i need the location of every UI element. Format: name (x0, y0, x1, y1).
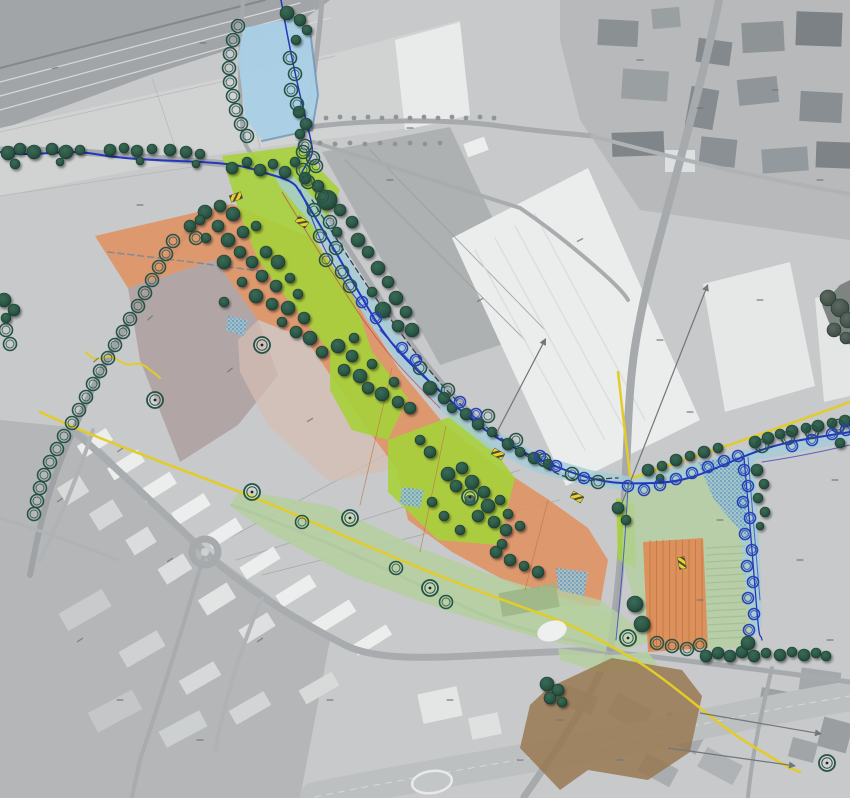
building-roof (651, 7, 681, 29)
tree-icon (195, 149, 205, 159)
parcel-label-mark (517, 759, 524, 760)
tree-icon (56, 158, 64, 166)
building-roof (799, 91, 843, 123)
tree-icon (627, 596, 643, 612)
tree-icon (450, 480, 462, 492)
tree-icon (472, 510, 484, 522)
tree-icon (346, 216, 358, 228)
tree-icon (724, 650, 736, 662)
tree-icon (821, 651, 831, 661)
tree-icon (761, 648, 771, 658)
aerial-tree (827, 323, 841, 337)
tree-icon (254, 164, 266, 176)
parcel-label-mark (617, 759, 624, 760)
building-roof (621, 68, 669, 101)
tree-icon (293, 289, 303, 299)
tree-icon (184, 220, 196, 232)
tree-icon (375, 302, 391, 318)
tree-icon (557, 697, 567, 707)
map-canvas (0, 0, 850, 798)
tree-icon (10, 159, 20, 169)
tree-icon (219, 297, 229, 307)
tree-icon (237, 226, 249, 238)
tree-icon (268, 159, 278, 169)
tree-icon (456, 462, 468, 474)
tree-icon (349, 333, 359, 343)
tree-icon (753, 493, 763, 503)
roundabout-ring (201, 548, 209, 556)
tree-icon (271, 255, 285, 269)
tree-icon (367, 287, 377, 297)
tree-icon (59, 145, 73, 159)
tree-icon (392, 396, 404, 408)
tree-icon (1, 313, 11, 323)
specimen-tree-icon (244, 484, 260, 500)
tree-icon (713, 443, 723, 453)
aerial-tree-dot (378, 141, 383, 146)
aerial-tree-dot (338, 115, 343, 120)
parcel-label-mark (797, 559, 804, 560)
tree-icon (362, 246, 374, 258)
tree-icon (302, 25, 312, 35)
tree-icon (303, 331, 317, 345)
tree-icon (488, 516, 500, 528)
aerial-field-patch (395, 22, 470, 130)
tree-icon (495, 495, 505, 505)
tree-icon (519, 561, 529, 571)
tree-icon (285, 273, 295, 283)
tree-icon (214, 200, 226, 212)
tree-icon (27, 145, 41, 159)
specimen-tree-icon (422, 580, 438, 596)
tree-icon (741, 636, 755, 650)
zone-allotment (643, 538, 708, 652)
tree-icon (136, 157, 144, 165)
parcel-label-mark (657, 339, 664, 340)
tree-icon (798, 649, 810, 661)
tree-icon (277, 317, 287, 327)
tree-icon (404, 402, 416, 414)
tree-icon (835, 438, 845, 448)
tree-icon (195, 215, 205, 225)
aerial-tree-dot (352, 116, 357, 121)
tree-icon (423, 381, 437, 395)
specimen-tree-icon (342, 510, 358, 526)
tree-icon (249, 289, 263, 303)
tree-icon (353, 369, 367, 383)
tree-icon (497, 539, 507, 549)
tree-icon (346, 350, 358, 362)
tree-icon (332, 227, 342, 237)
tree-icon (367, 359, 377, 369)
parcel-label-mark (447, 699, 454, 700)
tree-icon (670, 454, 682, 466)
tree-icon (389, 291, 403, 305)
aerial-tree-dot (436, 116, 441, 121)
tree-icon (712, 647, 724, 659)
building-roof (737, 76, 779, 106)
parcel-label-mark (832, 479, 839, 480)
tree-icon (515, 447, 525, 457)
tree-icon (389, 377, 399, 387)
tree-icon (8, 304, 20, 316)
aerial-tree-dot (492, 116, 497, 121)
tree-icon (405, 323, 419, 337)
tree-icon (334, 204, 346, 216)
tree-icon (544, 692, 556, 704)
aerial-tree-dot (333, 142, 338, 147)
building-roof (741, 21, 785, 53)
tree-icon (371, 261, 385, 275)
parcel-label-mark (407, 127, 414, 128)
tree-icon (503, 509, 513, 519)
tree-icon (1, 146, 15, 160)
tree-icon (270, 280, 282, 292)
tree-icon (685, 451, 695, 461)
aerial-tree-dot (438, 141, 443, 146)
tree-icon (400, 306, 412, 318)
aerial-tree-dot (423, 142, 428, 147)
parcel-label-mark (117, 699, 124, 700)
tree-icon (774, 649, 786, 661)
tree-icon (164, 144, 176, 156)
parcel-label-mark (757, 299, 764, 300)
aerial-tree-dot (408, 141, 413, 146)
tree-icon (119, 143, 129, 153)
tree-icon (256, 270, 268, 282)
tree-icon (280, 6, 294, 20)
tree-icon (338, 364, 350, 376)
tree-icon (251, 221, 261, 231)
tree-icon (46, 143, 58, 155)
parcel-label-mark (387, 179, 394, 180)
tree-icon (281, 301, 295, 315)
tree-icon (180, 146, 192, 158)
specimen-tree-icon (620, 630, 636, 646)
tree-icon (266, 298, 278, 310)
tree-icon (290, 326, 302, 338)
aerial-tree-dot (408, 116, 413, 121)
parcel-label-mark (817, 179, 824, 180)
tree-icon (0, 293, 11, 307)
tree-icon (415, 435, 425, 445)
aerial-tree-dot (464, 116, 469, 121)
tree-icon (478, 486, 490, 498)
tree-icon (217, 255, 231, 269)
tree-icon (487, 427, 497, 437)
tree-icon (751, 464, 763, 476)
parcel-label-mark (137, 204, 144, 205)
aerial-tree-dot (450, 115, 455, 120)
masterplan-map (0, 0, 850, 798)
tree-icon (382, 276, 394, 288)
tree-icon (455, 525, 465, 535)
tree-icon (612, 502, 624, 514)
parcel-label-mark (772, 89, 779, 90)
tree-icon (811, 648, 821, 658)
aerial-tree-dot (318, 141, 323, 146)
tree-icon (634, 616, 650, 632)
tree-icon (362, 382, 374, 394)
aerial-tree (840, 332, 850, 344)
tree-icon (375, 387, 389, 401)
parcel-label-mark (827, 639, 834, 640)
tree-icon (221, 233, 235, 247)
parcel-label-mark (697, 599, 704, 600)
tree-icon (698, 446, 710, 458)
specimen-tree-icon (254, 337, 270, 353)
tree-icon (75, 145, 85, 155)
tree-icon (246, 256, 258, 268)
tree-icon (279, 166, 291, 178)
building-roof (761, 146, 809, 173)
tree-icon (298, 312, 310, 324)
building-roof (816, 141, 850, 168)
tree-icon (131, 145, 143, 157)
parcel-label-mark (200, 42, 207, 43)
tree-icon (427, 497, 437, 507)
tree-icon (192, 160, 200, 168)
aerial-tree-dot (393, 142, 398, 147)
tree-icon (642, 464, 654, 476)
aerial-tree-dot (324, 116, 329, 121)
tree-icon (104, 144, 116, 156)
tree-icon (657, 461, 667, 471)
aerial-tree-dot (394, 115, 399, 120)
tree-icon (260, 246, 272, 258)
aerial-tree-dot (348, 141, 353, 146)
parcel-label-mark (557, 719, 564, 720)
parcel-label-mark (717, 519, 724, 520)
tree-icon (147, 144, 157, 154)
aerial-tree-dot (363, 142, 368, 147)
aerial-tree-dot (366, 115, 371, 120)
tree-icon (787, 647, 797, 657)
specimen-tree-icon (462, 489, 478, 505)
specimen-tree-icon (819, 755, 835, 771)
tree-icon (532, 566, 544, 578)
building-roof (597, 19, 638, 47)
parcel-label-mark (327, 699, 334, 700)
tree-icon (291, 35, 301, 45)
aerial-tree-dot (478, 115, 483, 120)
parcel-label-mark (197, 739, 204, 740)
tree-icon (14, 143, 26, 155)
tree-icon (294, 14, 306, 26)
tree-icon (234, 246, 246, 258)
tree-icon (331, 339, 345, 353)
specimen-tree-icon (147, 392, 163, 408)
tree-icon (439, 511, 449, 521)
aerial-tree-dot (422, 115, 427, 120)
tree-icon (351, 233, 365, 247)
tree-icon (481, 499, 495, 513)
tree-icon (226, 162, 238, 174)
tree-icon (237, 277, 247, 287)
parcel-label-mark (697, 107, 704, 108)
tree-icon (500, 524, 512, 536)
tree-icon (212, 220, 224, 232)
tree-icon (756, 522, 764, 530)
tree-icon (515, 521, 525, 531)
tree-icon (760, 507, 770, 517)
allotment-parcel (643, 538, 708, 652)
tree-icon (441, 467, 455, 481)
tree-icon (295, 129, 305, 139)
tree-icon (392, 320, 404, 332)
tree-icon (748, 650, 760, 662)
tree-icon (316, 346, 328, 358)
tree-icon (621, 515, 631, 525)
parcel-label-mark (637, 59, 644, 60)
tree-icon (465, 475, 479, 489)
tree-icon (759, 479, 769, 489)
tree-icon (504, 554, 516, 566)
tree-icon (242, 157, 252, 167)
parcel-label-mark (687, 411, 694, 412)
aerial-tree-dot (380, 116, 385, 121)
building-roof (795, 11, 842, 47)
tree-icon (300, 118, 312, 130)
tree-icon (226, 207, 240, 221)
tree-icon (424, 446, 436, 458)
